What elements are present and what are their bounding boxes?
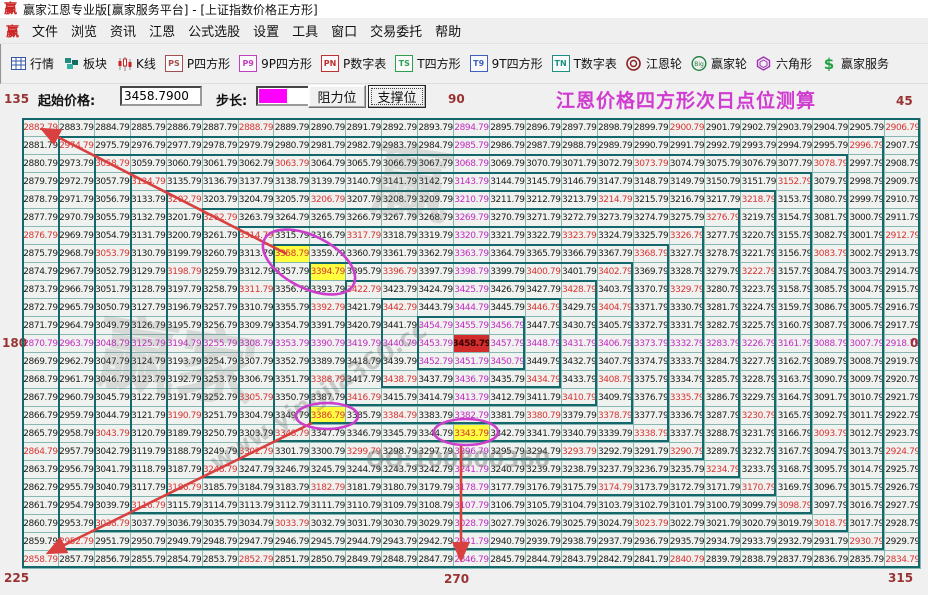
- price-cell[interactable]: 3162.79: [777, 353, 813, 371]
- price-cell[interactable]: 3054.79: [95, 227, 131, 245]
- price-cell[interactable]: 3063.79: [274, 155, 310, 173]
- price-cell[interactable]: 3316.79: [310, 227, 346, 245]
- price-cell[interactable]: 3015.79: [849, 479, 885, 497]
- price-cell[interactable]: 3183.79: [274, 479, 310, 497]
- price-cell[interactable]: 3196.79: [167, 299, 203, 317]
- price-cell[interactable]: 2868.79: [23, 371, 59, 389]
- price-cell[interactable]: 3281.79: [705, 299, 741, 317]
- price-cell[interactable]: 3102.79: [634, 497, 670, 515]
- price-cell[interactable]: 2974.79: [59, 137, 95, 155]
- price-cell[interactable]: 3302.79: [239, 443, 275, 461]
- price-cell[interactable]: 2948.79: [203, 533, 239, 551]
- price-cell[interactable]: 3370.79: [634, 281, 670, 299]
- price-cell[interactable]: 3078.79: [813, 155, 849, 173]
- price-cell[interactable]: 3084.79: [813, 263, 849, 281]
- price-cell[interactable]: 3201.79: [167, 209, 203, 227]
- price-cell[interactable]: 3350.79: [274, 389, 310, 407]
- price-cell[interactable]: 3221.79: [741, 245, 777, 263]
- price-cell[interactable]: 2847.79: [418, 551, 454, 569]
- price-cell[interactable]: 3375.79: [634, 371, 670, 389]
- price-cell[interactable]: 2943.79: [382, 533, 418, 551]
- price-cell[interactable]: 3249.79: [203, 443, 239, 461]
- price-cell[interactable]: 2917.79: [885, 317, 921, 335]
- price-cell[interactable]: 3041.79: [95, 461, 131, 479]
- menu-item-0[interactable]: 文件: [29, 19, 61, 42]
- price-cell[interactable]: 3109.79: [382, 497, 418, 515]
- support-button[interactable]: 支撑位: [368, 85, 426, 108]
- price-cell[interactable]: 3359.79: [310, 245, 346, 263]
- price-cell[interactable]: 3409.79: [598, 389, 634, 407]
- price-cell[interactable]: 3223.79: [741, 281, 777, 299]
- price-cell[interactable]: 3304.79: [239, 407, 275, 425]
- price-cell[interactable]: 2834.79: [885, 551, 921, 569]
- price-cell[interactable]: 2955.79: [59, 479, 95, 497]
- price-cell[interactable]: 3187.79: [167, 461, 203, 479]
- price-cell[interactable]: 3174.79: [598, 479, 634, 497]
- price-cell[interactable]: 2915.79: [885, 281, 921, 299]
- price-cell[interactable]: 2844.79: [526, 551, 562, 569]
- price-cell[interactable]: 2993.79: [741, 137, 777, 155]
- price-cell[interactable]: 3261.79: [203, 227, 239, 245]
- price-cell[interactable]: 3301.79: [274, 443, 310, 461]
- price-cell[interactable]: 2927.79: [885, 497, 921, 515]
- price-cell[interactable]: 3108.79: [418, 497, 454, 515]
- price-cell[interactable]: 3222.79: [741, 263, 777, 281]
- price-cell[interactable]: 2880.79: [23, 155, 59, 173]
- price-cell[interactable]: 3005.79: [849, 299, 885, 317]
- price-cell[interactable]: 3451.79: [454, 353, 490, 371]
- price-cell[interactable]: 3293.79: [562, 443, 598, 461]
- price-cell[interactable]: 3175.79: [562, 479, 598, 497]
- price-cell[interactable]: 3211.79: [490, 191, 526, 209]
- price-cell[interactable]: 3441.79: [382, 317, 418, 335]
- price-cell[interactable]: 3115.79: [167, 497, 203, 515]
- price-cell[interactable]: 3028.79: [454, 515, 490, 533]
- price-cell[interactable]: 3263.79: [239, 209, 275, 227]
- price-cell[interactable]: 2840.79: [670, 551, 706, 569]
- price-cell[interactable]: 3438.79: [382, 371, 418, 389]
- price-cell[interactable]: 3100.79: [705, 497, 741, 515]
- price-cell[interactable]: 3104.79: [562, 497, 598, 515]
- price-cell[interactable]: 3312.79: [239, 263, 275, 281]
- price-cell[interactable]: 3137.79: [239, 173, 275, 191]
- price-cell[interactable]: 2959.79: [59, 407, 95, 425]
- menu-item-2[interactable]: 资讯: [107, 19, 139, 42]
- price-cell[interactable]: 3325.79: [634, 227, 670, 245]
- price-cell[interactable]: 3205.79: [274, 191, 310, 209]
- price-cell[interactable]: 3443.79: [418, 299, 454, 317]
- price-cell[interactable]: 2885.79: [131, 119, 167, 137]
- price-cell[interactable]: 3377.79: [634, 407, 670, 425]
- price-cell[interactable]: 2934.79: [705, 533, 741, 551]
- price-cell[interactable]: 3288.79: [705, 425, 741, 443]
- price-cell[interactable]: 2936.79: [634, 533, 670, 551]
- price-cell[interactable]: 3313.79: [239, 245, 275, 263]
- price-cell[interactable]: 3243.79: [382, 461, 418, 479]
- price-cell[interactable]: 3022.79: [670, 515, 706, 533]
- price-cell[interactable]: 3405.79: [598, 317, 634, 335]
- price-cell[interactable]: 2891.79: [346, 119, 382, 137]
- price-cell[interactable]: 3168.79: [777, 461, 813, 479]
- price-cell[interactable]: 2939.79: [526, 533, 562, 551]
- price-cell[interactable]: 3149.79: [670, 173, 706, 191]
- price-cell[interactable]: 3234.79: [705, 461, 741, 479]
- price-cell[interactable]: 3180.79: [382, 479, 418, 497]
- price-cell[interactable]: 2976.79: [131, 137, 167, 155]
- price-cell[interactable]: 2965.79: [59, 299, 95, 317]
- price-cell[interactable]: 3177.79: [490, 479, 526, 497]
- price-cell[interactable]: 3012.79: [849, 425, 885, 443]
- price-cell[interactable]: 2882.79: [23, 119, 59, 137]
- price-cell[interactable]: 3046.79: [95, 371, 131, 389]
- price-cell[interactable]: 3055.79: [95, 209, 131, 227]
- price-cell[interactable]: 2898.79: [598, 119, 634, 137]
- price-cell[interactable]: 3374.79: [634, 353, 670, 371]
- price-cell[interactable]: 3176.79: [526, 479, 562, 497]
- price-cell[interactable]: 2987.79: [526, 137, 562, 155]
- price-cell[interactable]: 3058.79: [95, 155, 131, 173]
- toolbar-item-kline[interactable]: K线: [116, 55, 156, 72]
- price-cell[interactable]: 3151.79: [741, 173, 777, 191]
- price-cell[interactable]: 2998.79: [849, 173, 885, 191]
- price-cell[interactable]: 3264.79: [274, 209, 310, 227]
- price-cell[interactable]: 3050.79: [95, 299, 131, 317]
- price-cell[interactable]: 2952.79: [59, 533, 95, 551]
- toolbar-item-winner-wheel[interactable]: Big赢家轮: [691, 55, 747, 72]
- price-cell[interactable]: 3252.79: [203, 389, 239, 407]
- price-cell[interactable]: 2881.79: [23, 137, 59, 155]
- price-cell[interactable]: 3435.79: [490, 371, 526, 389]
- price-cell[interactable]: 3349.79: [274, 407, 310, 425]
- price-cell[interactable]: 3064.79: [310, 155, 346, 173]
- price-cell[interactable]: 2950.79: [131, 533, 167, 551]
- price-cell[interactable]: 3442.79: [382, 299, 418, 317]
- price-cell[interactable]: 3415.79: [382, 389, 418, 407]
- price-cell[interactable]: 3214.79: [598, 191, 634, 209]
- price-cell[interactable]: 3343.79: [454, 425, 490, 443]
- price-cell[interactable]: 3365.79: [526, 245, 562, 263]
- price-cell[interactable]: 2902.79: [741, 119, 777, 137]
- price-cell[interactable]: 3167.79: [777, 443, 813, 461]
- price-cell[interactable]: 3247.79: [239, 461, 275, 479]
- price-cell[interactable]: 2999.79: [849, 191, 885, 209]
- price-cell[interactable]: 2876.79: [23, 227, 59, 245]
- price-cell[interactable]: 3057.79: [95, 173, 131, 191]
- price-cell[interactable]: 3422.79: [346, 281, 382, 299]
- price-cell[interactable]: 2854.79: [167, 551, 203, 569]
- price-cell[interactable]: 3198.79: [167, 263, 203, 281]
- price-cell[interactable]: 3434.79: [526, 371, 562, 389]
- price-cell[interactable]: 3416.79: [346, 389, 382, 407]
- price-cell[interactable]: 3344.79: [418, 425, 454, 443]
- price-cell[interactable]: 2873.79: [23, 281, 59, 299]
- price-cell[interactable]: 3419.79: [346, 335, 382, 353]
- price-cell[interactable]: 3384.79: [382, 407, 418, 425]
- price-cell[interactable]: 3044.79: [95, 407, 131, 425]
- price-cell[interactable]: 3083.79: [813, 245, 849, 263]
- price-cell[interactable]: 2908.79: [885, 155, 921, 173]
- price-cell[interactable]: 2954.79: [59, 497, 95, 515]
- price-cell[interactable]: 3179.79: [418, 479, 454, 497]
- price-cell[interactable]: 3376.79: [634, 389, 670, 407]
- price-cell[interactable]: 3200.79: [167, 227, 203, 245]
- price-cell[interactable]: 3363.79: [454, 245, 490, 263]
- price-cell[interactable]: 3120.79: [131, 425, 167, 443]
- price-cell[interactable]: 3337.79: [670, 425, 706, 443]
- price-cell[interactable]: 3134.79: [131, 173, 167, 191]
- price-cell[interactable]: 3132.79: [131, 209, 167, 227]
- price-cell[interactable]: 2921.79: [885, 389, 921, 407]
- menu-item-3[interactable]: 江恩: [146, 19, 178, 42]
- price-cell[interactable]: 3212.79: [526, 191, 562, 209]
- price-cell[interactable]: 3386.79: [310, 407, 346, 425]
- price-cell[interactable]: 3317.79: [346, 227, 382, 245]
- price-cell[interactable]: 2981.79: [310, 137, 346, 155]
- price-cell[interactable]: 3029.79: [418, 515, 454, 533]
- price-cell[interactable]: 3071.79: [562, 155, 598, 173]
- price-cell[interactable]: 3245.79: [310, 461, 346, 479]
- price-cell[interactable]: 3097.79: [813, 497, 849, 515]
- price-cell[interactable]: 2994.79: [777, 137, 813, 155]
- price-cell[interactable]: 2856.79: [95, 551, 131, 569]
- price-cell[interactable]: 3171.79: [705, 479, 741, 497]
- price-cell[interactable]: 2877.79: [23, 209, 59, 227]
- price-cell[interactable]: 3188.79: [167, 443, 203, 461]
- price-cell[interactable]: 3158.79: [777, 281, 813, 299]
- price-cell[interactable]: 3209.79: [418, 191, 454, 209]
- price-cell[interactable]: 2846.79: [454, 551, 490, 569]
- price-cell[interactable]: 3077.79: [777, 155, 813, 173]
- price-cell[interactable]: 3127.79: [131, 299, 167, 317]
- price-cell[interactable]: 3031.79: [346, 515, 382, 533]
- price-cell[interactable]: 3001.79: [849, 227, 885, 245]
- price-cell[interactable]: 3445.79: [490, 299, 526, 317]
- price-cell[interactable]: 3065.79: [346, 155, 382, 173]
- price-cell[interactable]: 3230.79: [741, 407, 777, 425]
- price-cell[interactable]: 3420.79: [346, 317, 382, 335]
- price-cell[interactable]: 3032.79: [310, 515, 346, 533]
- price-cell[interactable]: 3048.79: [95, 335, 131, 353]
- price-cell[interactable]: 2892.79: [382, 119, 418, 137]
- price-cell[interactable]: 3455.79: [454, 317, 490, 335]
- toolbar-item-gann-wheel[interactable]: 江恩轮: [626, 55, 682, 72]
- price-cell[interactable]: 3273.79: [598, 209, 634, 227]
- price-cell[interactable]: 3296.79: [454, 443, 490, 461]
- price-cell[interactable]: 3306.79: [239, 371, 275, 389]
- price-cell[interactable]: 3033.79: [274, 515, 310, 533]
- price-cell[interactable]: 3133.79: [131, 191, 167, 209]
- menu-item-8[interactable]: 交易委托: [367, 19, 425, 42]
- price-cell[interactable]: 2985.79: [454, 137, 490, 155]
- price-cell[interactable]: 2905.79: [849, 119, 885, 137]
- price-cell[interactable]: 3265.79: [310, 209, 346, 227]
- price-cell[interactable]: 3239.79: [526, 461, 562, 479]
- price-cell[interactable]: 3140.79: [346, 173, 382, 191]
- price-cell[interactable]: 2910.79: [885, 191, 921, 209]
- price-cell[interactable]: 2872.79: [23, 299, 59, 317]
- price-cell[interactable]: 3074.79: [670, 155, 706, 173]
- price-cell[interactable]: 3043.79: [95, 425, 131, 443]
- price-cell[interactable]: 3366.79: [562, 245, 598, 263]
- price-cell[interactable]: 3382.79: [454, 407, 490, 425]
- price-cell[interactable]: 3358.79: [274, 245, 310, 263]
- price-cell[interactable]: 3039.79: [95, 497, 131, 515]
- price-cell[interactable]: 3309.79: [239, 317, 275, 335]
- price-cell[interactable]: 2862.79: [23, 479, 59, 497]
- price-cell[interactable]: 3424.79: [418, 281, 454, 299]
- price-cell[interactable]: 3130.79: [131, 245, 167, 263]
- price-cell[interactable]: 3394.79: [310, 263, 346, 281]
- price-cell[interactable]: 3342.79: [490, 425, 526, 443]
- price-cell[interactable]: 3242.79: [418, 461, 454, 479]
- price-cell[interactable]: 3150.79: [705, 173, 741, 191]
- price-cell[interactable]: 2870.79: [23, 335, 59, 353]
- price-cell[interactable]: 3124.79: [131, 353, 167, 371]
- price-cell[interactable]: 2953.79: [59, 515, 95, 533]
- price-cell[interactable]: 3408.79: [598, 371, 634, 389]
- price-cell[interactable]: 3038.79: [95, 515, 131, 533]
- price-cell[interactable]: 3253.79: [203, 371, 239, 389]
- price-cell[interactable]: 2956.79: [59, 461, 95, 479]
- price-cell[interactable]: 3017.79: [849, 515, 885, 533]
- price-cell[interactable]: 3011.79: [849, 407, 885, 425]
- price-cell[interactable]: 3428.79: [562, 281, 598, 299]
- price-cell[interactable]: 3121.79: [131, 407, 167, 425]
- price-cell[interactable]: 3114.79: [203, 497, 239, 515]
- price-cell[interactable]: 2913.79: [885, 245, 921, 263]
- price-cell[interactable]: 3144.79: [490, 173, 526, 191]
- price-cell[interactable]: 2920.79: [885, 371, 921, 389]
- price-cell[interactable]: 2988.79: [562, 137, 598, 155]
- price-cell[interactable]: 3241.79: [454, 461, 490, 479]
- price-cell[interactable]: 3142.79: [418, 173, 454, 191]
- price-cell[interactable]: 3291.79: [634, 443, 670, 461]
- price-cell[interactable]: 3075.79: [705, 155, 741, 173]
- price-cell[interactable]: 2919.79: [885, 353, 921, 371]
- price-cell[interactable]: 3450.79: [490, 353, 526, 371]
- price-cell[interactable]: 3432.79: [562, 353, 598, 371]
- price-cell[interactable]: 2963.79: [59, 335, 95, 353]
- price-cell[interactable]: 3080.79: [813, 191, 849, 209]
- price-cell[interactable]: 3389.79: [310, 353, 346, 371]
- price-cell[interactable]: 3323.79: [562, 227, 598, 245]
- price-cell[interactable]: 3355.79: [274, 299, 310, 317]
- price-cell[interactable]: 3353.79: [274, 335, 310, 353]
- price-cell[interactable]: 3231.79: [741, 425, 777, 443]
- price-cell[interactable]: 3289.79: [705, 443, 741, 461]
- price-cell[interactable]: 3152.79: [777, 173, 813, 191]
- price-cell[interactable]: 3356.79: [274, 281, 310, 299]
- price-cell[interactable]: 3091.79: [813, 389, 849, 407]
- price-cell[interactable]: 3024.79: [598, 515, 634, 533]
- price-cell[interactable]: 2896.79: [526, 119, 562, 137]
- menu-item-7[interactable]: 窗口: [328, 19, 360, 42]
- price-cell[interactable]: 3020.79: [741, 515, 777, 533]
- price-cell[interactable]: 3195.79: [167, 317, 203, 335]
- price-cell[interactable]: 3190.79: [167, 407, 203, 425]
- price-cell[interactable]: 2932.79: [777, 533, 813, 551]
- price-cell[interactable]: 3082.79: [813, 227, 849, 245]
- price-cell[interactable]: 3278.79: [705, 245, 741, 263]
- price-cell[interactable]: 3412.79: [490, 389, 526, 407]
- price-cell[interactable]: 3228.79: [741, 371, 777, 389]
- price-cell[interactable]: 3292.79: [598, 443, 634, 461]
- price-cell[interactable]: 3068.79: [454, 155, 490, 173]
- menu-item-4[interactable]: 公式选股: [185, 19, 243, 42]
- price-cell[interactable]: 3069.79: [490, 155, 526, 173]
- price-cell[interactable]: 2843.79: [562, 551, 598, 569]
- price-cell[interactable]: 3170.79: [741, 479, 777, 497]
- price-cell[interactable]: 3092.79: [813, 407, 849, 425]
- price-cell[interactable]: 3282.79: [705, 317, 741, 335]
- price-cell[interactable]: 3335.79: [670, 389, 706, 407]
- price-cell[interactable]: 3225.79: [741, 317, 777, 335]
- price-cell[interactable]: 3007.79: [849, 335, 885, 353]
- price-cell[interactable]: 3361.79: [382, 245, 418, 263]
- price-cell[interactable]: 3224.79: [741, 299, 777, 317]
- price-cell[interactable]: 2992.79: [705, 137, 741, 155]
- price-cell[interactable]: 3169.79: [777, 479, 813, 497]
- price-cell[interactable]: 2869.79: [23, 353, 59, 371]
- price-cell[interactable]: 3336.79: [670, 407, 706, 425]
- price-cell[interactable]: 3360.79: [346, 245, 382, 263]
- price-cell[interactable]: 3287.79: [705, 407, 741, 425]
- price-cell[interactable]: 2855.79: [131, 551, 167, 569]
- price-cell[interactable]: 3400.79: [526, 263, 562, 281]
- price-cell[interactable]: 2989.79: [598, 137, 634, 155]
- price-cell[interactable]: 3388.79: [310, 371, 346, 389]
- price-cell[interactable]: 3271.79: [526, 209, 562, 227]
- price-cell[interactable]: 2904.79: [813, 119, 849, 137]
- toolbar-item-sectors[interactable]: 板块: [63, 55, 107, 72]
- price-cell[interactable]: 3165.79: [777, 407, 813, 425]
- price-cell[interactable]: 3436.79: [454, 371, 490, 389]
- price-cell[interactable]: 2839.79: [705, 551, 741, 569]
- price-cell[interactable]: 2923.79: [885, 425, 921, 443]
- price-cell[interactable]: 2859.79: [23, 533, 59, 551]
- price-cell[interactable]: 3393.79: [310, 281, 346, 299]
- price-cell[interactable]: 2924.79: [885, 443, 921, 461]
- price-cell[interactable]: 2940.79: [490, 533, 526, 551]
- price-cell[interactable]: 3418.79: [346, 353, 382, 371]
- price-cell[interactable]: 3314.79: [239, 227, 275, 245]
- price-cell[interactable]: 3448.79: [526, 335, 562, 353]
- price-cell[interactable]: 3203.79: [203, 191, 239, 209]
- price-cell[interactable]: 3164.79: [777, 389, 813, 407]
- price-cell[interactable]: 2848.79: [382, 551, 418, 569]
- price-cell[interactable]: 3444.79: [454, 299, 490, 317]
- price-cell[interactable]: 3184.79: [239, 479, 275, 497]
- price-cell[interactable]: 3299.79: [346, 443, 382, 461]
- price-cell[interactable]: 3161.79: [777, 335, 813, 353]
- price-cell[interactable]: 3010.79: [849, 389, 885, 407]
- price-cell[interactable]: 3197.79: [167, 281, 203, 299]
- price-cell[interactable]: 3220.79: [741, 227, 777, 245]
- price-cell[interactable]: 2886.79: [167, 119, 203, 137]
- price-cell[interactable]: 2977.79: [167, 137, 203, 155]
- price-cell[interactable]: 3153.79: [777, 191, 813, 209]
- price-cell[interactable]: 2971.79: [59, 191, 95, 209]
- price-cell[interactable]: 3061.79: [203, 155, 239, 173]
- price-cell[interactable]: 2975.79: [95, 137, 131, 155]
- price-cell[interactable]: 2979.79: [239, 137, 275, 155]
- price-cell[interactable]: 3035.79: [203, 515, 239, 533]
- price-cell[interactable]: 2857.79: [59, 551, 95, 569]
- price-cell[interactable]: 2887.79: [203, 119, 239, 137]
- price-cell[interactable]: 3328.79: [670, 263, 706, 281]
- price-cell[interactable]: 2849.79: [346, 551, 382, 569]
- price-cell[interactable]: 3216.79: [670, 191, 706, 209]
